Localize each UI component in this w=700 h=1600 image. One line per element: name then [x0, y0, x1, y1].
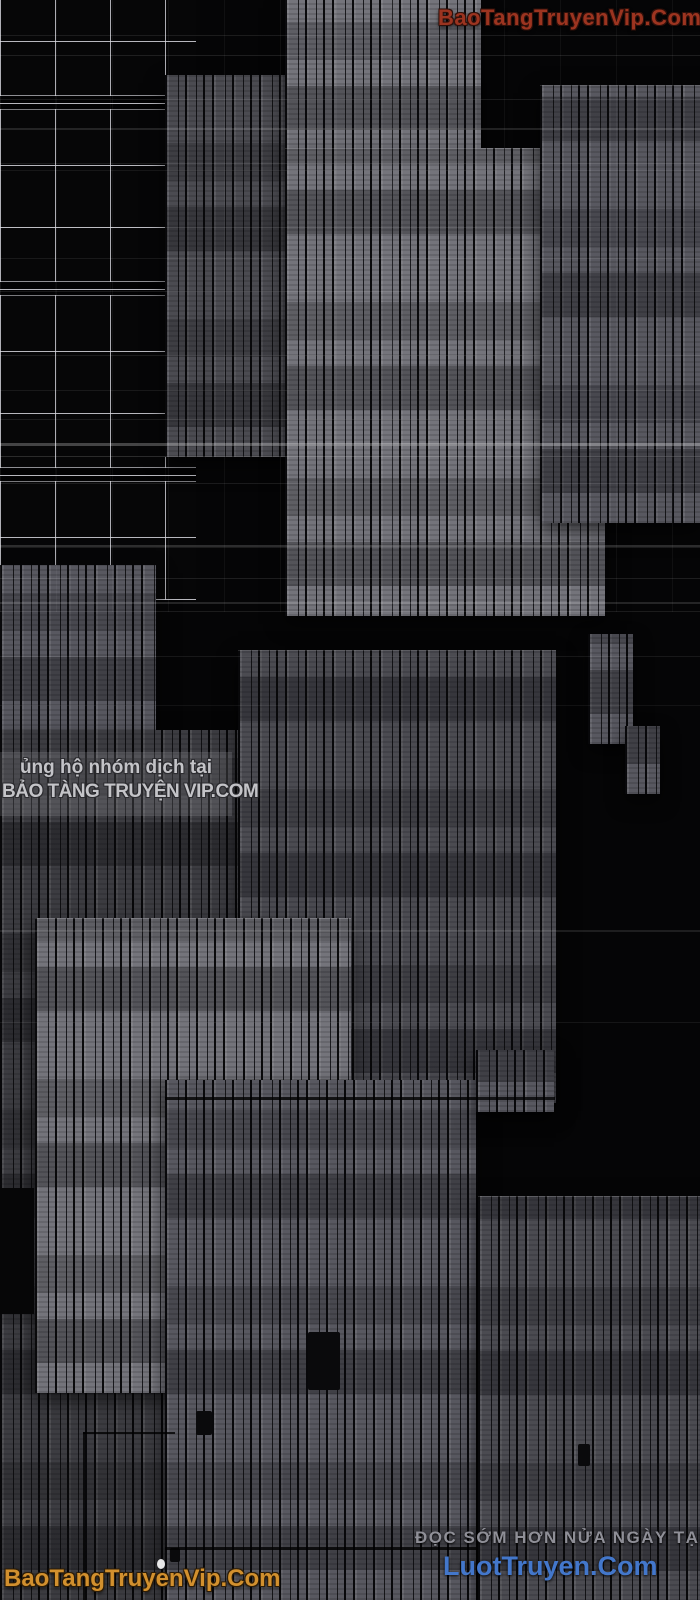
dark-blob-4	[578, 1444, 590, 1466]
bookshelf-top-right	[540, 85, 700, 523]
bookshelf-left-mid	[0, 565, 156, 731]
light-streak	[0, 128, 700, 130]
shadow-patch-left	[0, 1188, 34, 1314]
dark-blob-2	[196, 1411, 212, 1435]
watermark-bottom-right-site: LuotTruyen.Com	[443, 1551, 658, 1582]
dark-blob-3	[170, 1548, 180, 1562]
light-streak	[0, 602, 700, 604]
light-streak	[0, 443, 700, 446]
light-streak	[0, 705, 700, 706]
shelf-seam-1	[165, 1097, 555, 1100]
light-streak	[0, 1022, 700, 1023]
watermark-bottom-right-tagline: ĐỌC SỚM HƠN NỬA NGÀY TẠI	[415, 1528, 700, 1548]
bookshelf-small-right-2	[625, 726, 660, 794]
dark-blob-1	[308, 1332, 340, 1390]
watermark-mid-left-line2: BẢO TÀNG TRUYỆN VIP.COM	[2, 781, 230, 803]
watermark-bottom-left: BaoTangTruyenVip.Com	[4, 1565, 280, 1593]
watermark-mid-left: ủng hộ nhóm dịch tại BẢO TÀNG TRUYỆN VIP…	[2, 757, 230, 803]
light-streak	[0, 578, 700, 579]
light-streak	[0, 55, 700, 56]
watermark-top-right: BaoTangTruyenVip.Com	[438, 5, 700, 31]
shelf-seam-3	[83, 1432, 175, 1434]
light-streak	[0, 930, 700, 932]
watermark-mid-left-line1: ủng hộ nhóm dịch tại	[2, 757, 230, 779]
bookshelf-strip-right	[476, 1050, 554, 1112]
light-streak	[0, 170, 700, 171]
light-streak	[0, 456, 700, 457]
light-streak	[0, 545, 700, 547]
light-streak	[0, 258, 700, 259]
webtoon-page: BaoTangTruyenVip.Com ủng hộ nhóm dịch tạ…	[0, 0, 700, 1600]
light-streak	[0, 390, 700, 391]
light-streak	[0, 656, 700, 657]
